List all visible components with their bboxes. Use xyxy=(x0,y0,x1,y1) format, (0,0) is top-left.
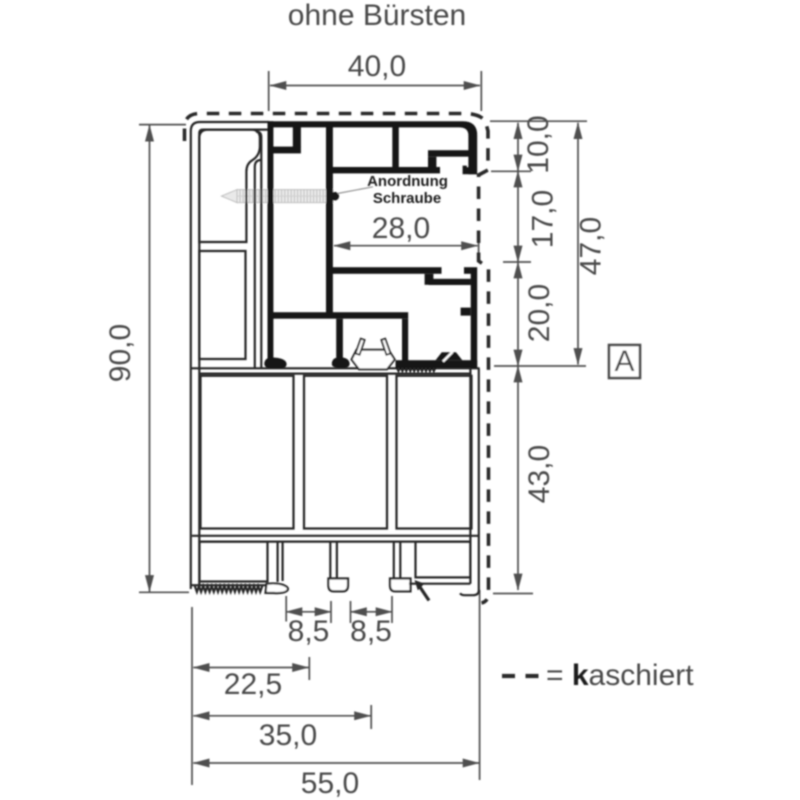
svg-text:10,0: 10,0 xyxy=(522,115,555,173)
svg-text:47,0: 47,0 xyxy=(575,217,608,275)
svg-text:90,0: 90,0 xyxy=(104,324,137,382)
svg-text:Schraube: Schraube xyxy=(373,190,441,207)
svg-text:A: A xyxy=(614,345,634,378)
svg-text:40,0: 40,0 xyxy=(348,50,406,83)
svg-text:8,5: 8,5 xyxy=(288,615,330,648)
svg-text:43,0: 43,0 xyxy=(523,445,556,503)
svg-text:= kaschiert: = kaschiert xyxy=(546,659,694,692)
svg-text:17,0: 17,0 xyxy=(527,190,560,248)
svg-text:28,0: 28,0 xyxy=(372,212,430,245)
svg-text:ohne Bürsten: ohne Bürsten xyxy=(288,0,466,32)
svg-text:20,0: 20,0 xyxy=(523,284,556,342)
svg-text:22,5: 22,5 xyxy=(224,668,282,701)
svg-text:35,0: 35,0 xyxy=(259,719,317,752)
svg-text:8,5: 8,5 xyxy=(350,615,392,648)
svg-text:55,0: 55,0 xyxy=(301,767,359,800)
svg-text:Anordnung: Anordnung xyxy=(367,173,448,190)
